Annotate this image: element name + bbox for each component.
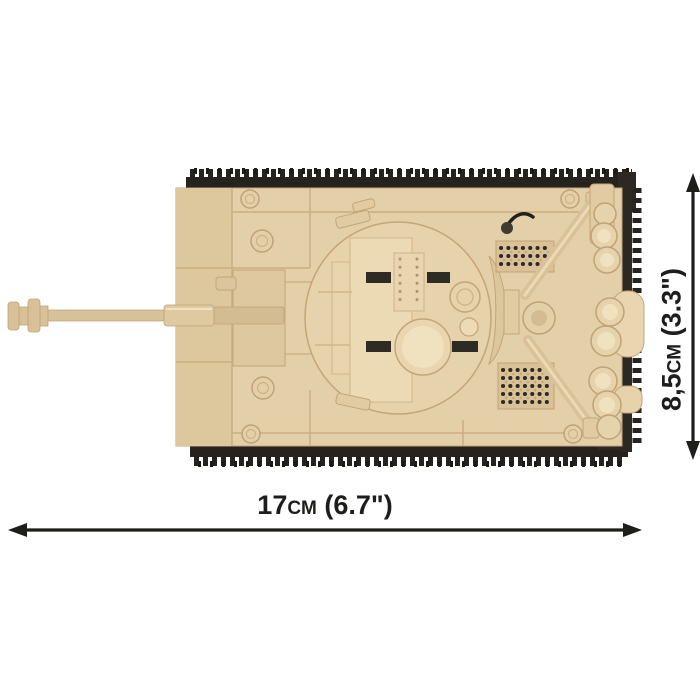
bottom-track — [190, 445, 628, 464]
cable-hub — [523, 302, 555, 334]
width-dimension-arrow — [8, 523, 642, 537]
width-dimension-label: 17cm (6.7") — [0, 492, 650, 519]
top-track — [186, 171, 634, 189]
tank-model-illustration — [0, 0, 700, 700]
turret-rivet-plate — [394, 253, 424, 311]
height-dimension-label: 8,5cm (3.3") — [659, 190, 686, 490]
muzzle-brake — [8, 299, 48, 332]
product-dimension-diagram: 17cm (6.7") 8,5cm (3.3") — [0, 0, 700, 700]
turret-hatch — [395, 319, 451, 375]
height-dimension-arrow — [686, 173, 700, 460]
turret-stud — [460, 318, 478, 336]
commander-hatch — [450, 282, 480, 312]
